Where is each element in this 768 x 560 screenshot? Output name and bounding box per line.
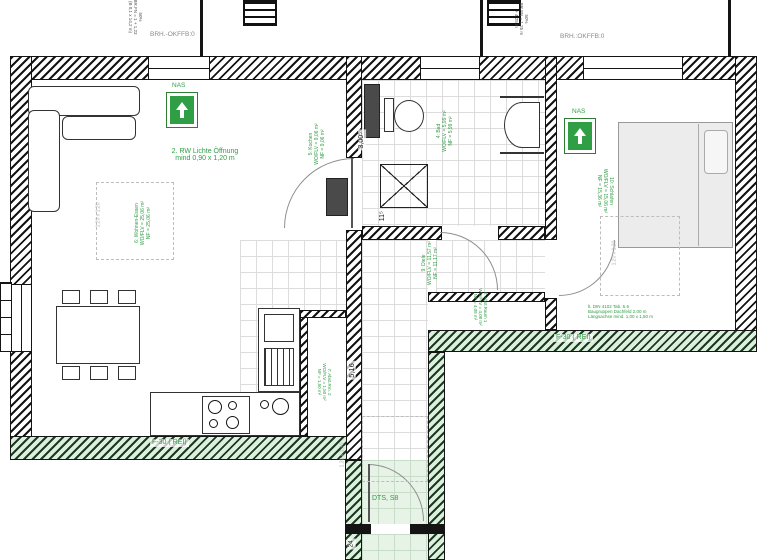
fridge bbox=[264, 348, 294, 386]
brh-label-left: BRH.-OKFFB:0 bbox=[150, 31, 195, 39]
pillow bbox=[704, 130, 728, 174]
dim-corridor-width: 11⁵ bbox=[379, 211, 387, 221]
arrow-up-icon bbox=[568, 122, 592, 150]
window-note-right: 50%BR.FN = 1,25 m+ 4,25 m bbox=[513, 0, 531, 49]
fire-rating-label: F-30 ( REI) bbox=[150, 439, 189, 447]
washbasin bbox=[504, 102, 540, 148]
burner-icon bbox=[209, 419, 218, 428]
sofa-side bbox=[28, 110, 60, 212]
fire-rating-label: F-30 ( REI) bbox=[554, 334, 593, 342]
clearance-size-label: 1,20 x 1,20 bbox=[95, 203, 101, 228]
room-label-living: 6: Wohnen-EssenWO/FLV = 25,06 m²NF = 25,… bbox=[133, 191, 153, 255]
skylight-ladder-icon bbox=[243, 0, 277, 26]
chair bbox=[118, 290, 136, 304]
balcony-railing bbox=[0, 282, 12, 352]
wall-bedroom-upper bbox=[545, 56, 557, 240]
window-note-left: 50%BR.FN = 1 + 1,23(B 0,1 x 14,2 m) bbox=[127, 0, 145, 47]
clearance-size-label: 1,20 x 1,20 bbox=[611, 241, 617, 266]
window-top-right bbox=[583, 56, 683, 80]
entry-lower-room bbox=[362, 534, 428, 560]
escape-window-note: 2. RW Lichte Öffnungmind 0,90 x 1,20 m bbox=[130, 144, 280, 166]
washbasin-counter-bottom bbox=[500, 152, 544, 154]
upper-partition-wall bbox=[728, 0, 731, 56]
bed-fold-line bbox=[698, 124, 699, 246]
sink-bowl-icon bbox=[260, 400, 269, 409]
fire-regulation-note: lt. DIN 4102 Tab. 5.6Baugruppen Dachfeld… bbox=[588, 302, 708, 320]
window-top-middle bbox=[420, 56, 480, 80]
room-label-hall: 9: DieleWO/FLV = 11,57 m²NF = 11,17 m² bbox=[420, 231, 440, 295]
upper-partition-wall bbox=[480, 0, 483, 56]
nas-marker-icon bbox=[166, 92, 198, 128]
nas-label: NAS bbox=[572, 108, 585, 116]
window-top-left bbox=[148, 56, 210, 80]
chair bbox=[90, 366, 108, 380]
nas-marker-icon bbox=[564, 118, 596, 154]
toilet-bowl bbox=[394, 100, 424, 132]
wall-right bbox=[735, 56, 757, 352]
burner-icon bbox=[228, 401, 237, 410]
oven bbox=[264, 314, 294, 342]
toilet-tank bbox=[384, 98, 394, 132]
sink-bowl-icon bbox=[272, 398, 289, 415]
window-left-wall bbox=[10, 284, 32, 352]
room-label-bedroom: 10: SchlafenWO/FLV = 15,06 m²NF = 15,36 … bbox=[595, 159, 615, 223]
nas-label: NAS bbox=[172, 82, 185, 90]
wall-living-hall-lower bbox=[346, 230, 362, 460]
dts-label: DTS, S8 bbox=[372, 495, 398, 503]
washbasin-counter-top bbox=[500, 96, 544, 98]
dim-corridor-length: 5,16 bbox=[347, 361, 356, 380]
arrow-up-icon bbox=[170, 96, 194, 124]
wall-storage2-top bbox=[300, 310, 346, 318]
clearance-size-label: 1,30 x 1,30 bbox=[339, 443, 345, 468]
dim-bath-width: 3,00⁵ bbox=[358, 130, 366, 151]
dining-table bbox=[56, 306, 140, 364]
chair bbox=[118, 366, 136, 380]
chair bbox=[62, 290, 80, 304]
room-label-storage2: 7: Abst.Rm. 2WO/FLV = 1,50 m²NF = 1,50 m… bbox=[317, 354, 333, 410]
door-leaf-living bbox=[351, 158, 353, 228]
brh-label-right: BRH.:OKFFB:0 bbox=[560, 33, 604, 41]
room-label-bath: 4: BadWO/FLV = 5,99 m²NF = 5,99 m² bbox=[435, 99, 455, 163]
dim-entry: 24 bbox=[348, 538, 356, 549]
entry-threshold-left bbox=[345, 524, 371, 534]
burner-icon bbox=[226, 416, 239, 429]
wall-bedroom-lower bbox=[545, 298, 557, 330]
shower-drain bbox=[380, 164, 428, 208]
floor-plan: BRH.-OKFFB:0 BRH.:OKFFB:0 50%BR.FN = 1 +… bbox=[0, 0, 768, 560]
chair bbox=[90, 290, 108, 304]
burner-icon bbox=[208, 400, 222, 414]
entry-threshold-right bbox=[410, 524, 445, 534]
wall-bath-bottom-b bbox=[498, 226, 545, 240]
sofa-seat bbox=[62, 116, 136, 140]
room-label-storage1: 8: Abst.Raum 1WO/FLV = 4,08 m²NF = 4,08 … bbox=[472, 278, 490, 336]
wall-storage2-vertical bbox=[300, 310, 308, 436]
chair bbox=[62, 366, 80, 380]
room-label-kitchen: 5: KochenWO/FLV = 9,06 m²NF = 9,06 m² bbox=[307, 112, 327, 176]
upper-partition-wall bbox=[200, 0, 203, 56]
clearance-square bbox=[362, 416, 428, 482]
